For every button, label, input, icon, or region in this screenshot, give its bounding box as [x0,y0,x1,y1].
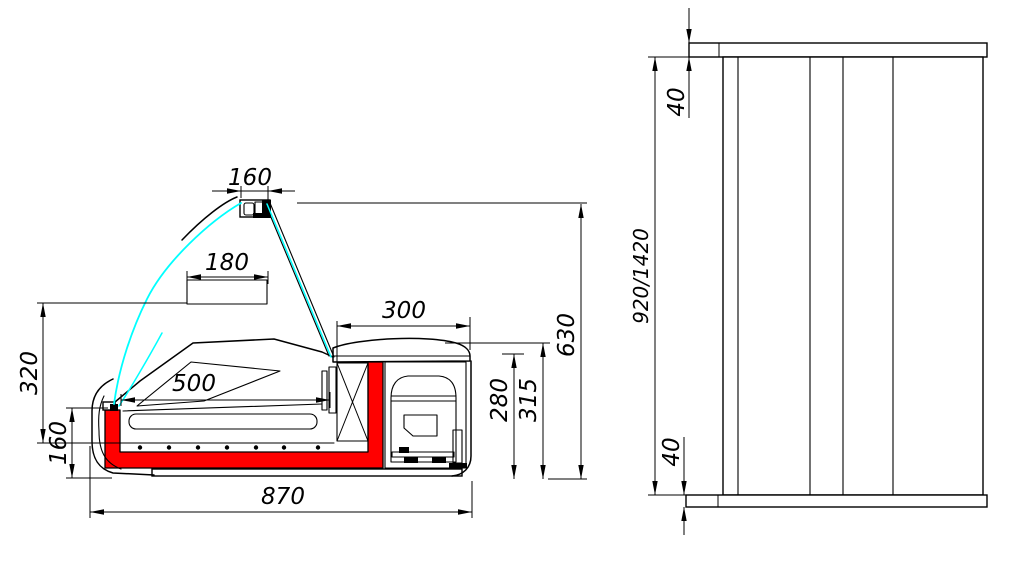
compressor [391,376,467,468]
dim-top-panel: 40 [648,8,721,118]
base-plinth [152,469,462,476]
display-case-drawing: 160 180 500 300 [0,0,1015,567]
dim-label-machine-height: 315 [516,378,542,422]
dim-front-upper-height: 320 [17,303,187,443]
top-panel [689,43,987,57]
tray [129,414,317,429]
dim-canopy-width: 160 [212,165,295,200]
dim-label-bottom-panel: 40 [659,437,685,466]
front-body [686,43,987,507]
dim-label-canopy-width: 160 [228,165,272,191]
dim-label-front-lower-height: 160 [46,421,72,465]
front-view: 40 920/1420 40 [629,8,987,535]
deck-lip [110,404,118,411]
shelf-box [187,280,267,304]
fan-housing [322,371,327,410]
drain-dots [138,445,320,449]
side-section-view: 160 180 500 300 [17,165,587,518]
compressor-plate [404,415,437,436]
dimensions-front: 40 920/1420 40 [629,8,721,535]
dim-deck-length: 500 [121,371,330,408]
compartment-lid [333,338,470,362]
bracket [453,430,462,463]
dim-shelf-width: 180 [187,250,268,284]
dim-label-body-height: 920/1420 [629,228,653,324]
dim-label-opening-height: 280 [487,378,513,422]
dim-body-height: 920/1420 [629,57,688,495]
dim-bottom-panel: 40 [659,437,685,535]
dim-machine-top-width: 300 [337,298,470,363]
lamp-fixture [240,200,271,218]
dim-label-overall-depth: 870 [261,484,305,510]
dim-label-overall-height: 630 [554,313,580,357]
bottom-panel [686,495,987,507]
glass-rear [265,203,334,357]
technical-drawing-page: 160 180 500 300 [0,0,1015,567]
evaporator [322,363,368,441]
dim-label-deck-length: 500 [172,371,216,397]
dim-label-machine-top-width: 300 [382,298,426,324]
dim-label-shelf-width: 180 [205,250,249,276]
body-panel [723,57,983,495]
canopy-edge [182,197,237,240]
insulation-red [105,362,383,468]
dim-label-front-upper-height: 320 [17,351,43,395]
dim-label-top-panel: 40 [664,87,690,116]
